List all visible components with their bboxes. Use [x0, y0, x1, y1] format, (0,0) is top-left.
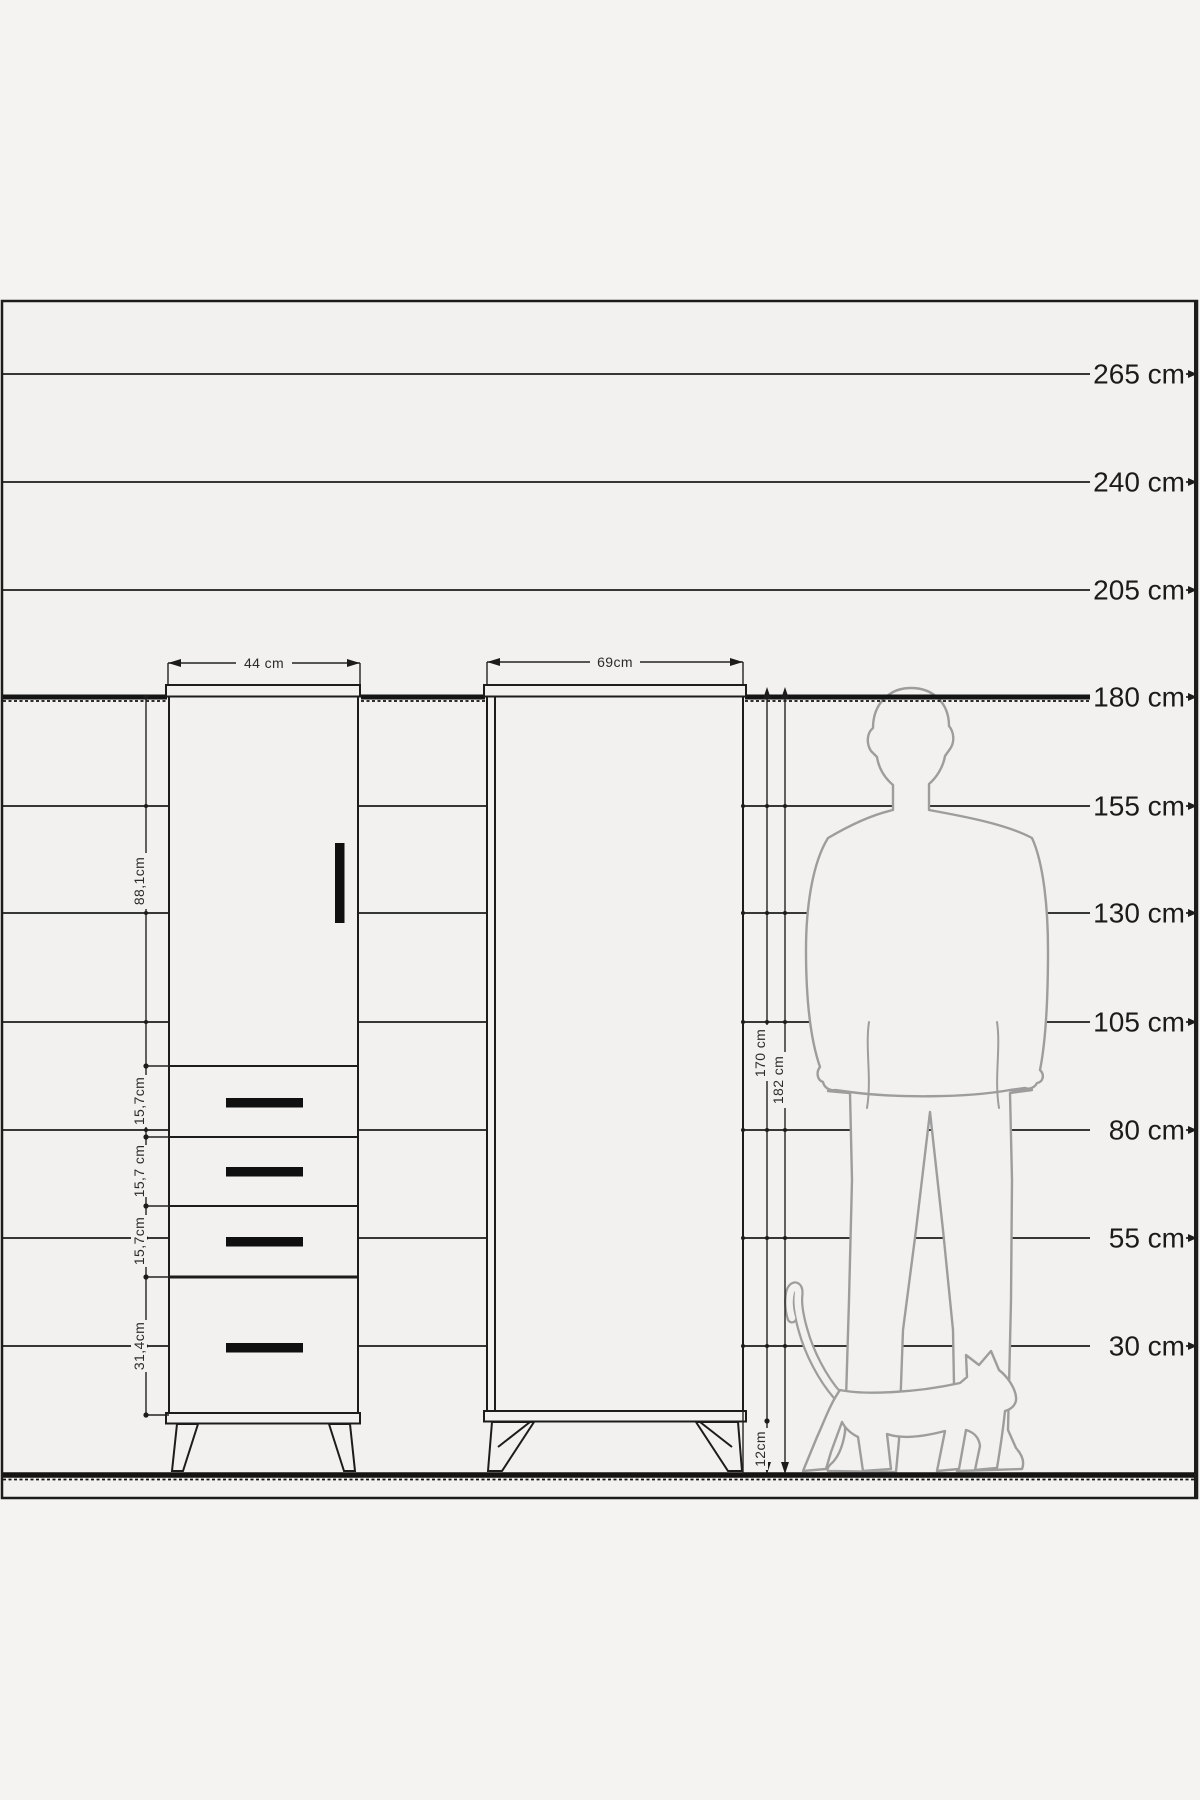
dim-node [764, 1418, 769, 1423]
scale-label: 155 cm [1093, 791, 1185, 822]
crossing-dot [144, 804, 148, 808]
width-dimension-label: 44 cm [244, 655, 284, 671]
small-cabinet [166, 685, 360, 1471]
scale-label: 30 cm [1109, 1331, 1185, 1362]
cabinet-bottom-panel [166, 1413, 360, 1424]
door-height-label: 88,1cm [131, 857, 147, 905]
crossing-dot [765, 1236, 769, 1240]
crossing-dot [765, 1344, 769, 1348]
dim-node [143, 1134, 148, 1139]
crossing-dot [783, 1344, 787, 1348]
scale-label: 55 cm [1109, 1223, 1185, 1254]
crossing-dot [783, 804, 787, 808]
dim-node [143, 694, 148, 699]
total-height-label: 182 cm [770, 1056, 786, 1104]
crossing-dot [783, 911, 787, 915]
cabinet-top-panel [166, 685, 360, 697]
crossing-dot [144, 1128, 148, 1132]
crossing-dot [783, 1236, 787, 1240]
scale-label: 180 cm [1093, 682, 1185, 713]
crossing-dot [741, 1128, 745, 1132]
drawer-height-label: 15,7cm [131, 1217, 147, 1265]
drawer-handle[interactable] [226, 1237, 303, 1247]
crossing-dot [765, 1020, 769, 1024]
dim-node [143, 1063, 148, 1068]
crossing-dot [741, 1344, 745, 1348]
drawer-handle[interactable] [226, 1167, 303, 1177]
crossing-dot [741, 911, 745, 915]
crossing-dot [765, 911, 769, 915]
drawer-height-label: 15,7cm [131, 1077, 147, 1125]
dim-node [143, 1412, 148, 1417]
scale-label: 80 cm [1109, 1115, 1185, 1146]
dim-node [143, 1274, 148, 1279]
crossing-dot [144, 1020, 148, 1024]
drawer-handle[interactable] [226, 1098, 303, 1108]
crossing-dot [741, 804, 745, 808]
crossing-dot [765, 1128, 769, 1132]
body-height-label: 170 cm [752, 1029, 768, 1077]
drawer-handle[interactable] [226, 1343, 303, 1353]
leg-height-label: 12cm [752, 1431, 768, 1467]
furniture-elevation-diagram: 265 cm 240 cm 205 cm 155 cm 130 [0, 0, 1200, 1800]
door-handle[interactable] [335, 843, 345, 923]
drawer-height-label: 15,7 cm [131, 1145, 147, 1198]
crossing-dot [741, 1236, 745, 1240]
cabinet-bottom-panel [484, 1411, 746, 1422]
cabinet-body [487, 696, 743, 1412]
cabinet-top-panel [484, 685, 746, 697]
floor-line [3, 1475, 1196, 1480]
crossing-dot [783, 1020, 787, 1024]
crossing-dot [741, 1020, 745, 1024]
cabinet-body [169, 696, 358, 1415]
large-cabinet [484, 685, 746, 1471]
crossing-dot [783, 1128, 787, 1132]
drawer-height-label: 31,4cm [131, 1322, 147, 1370]
dim-node [143, 1203, 148, 1208]
crossing-dot [765, 804, 769, 808]
scale-label: 130 cm [1093, 898, 1185, 929]
crossing-dot [144, 911, 148, 915]
scale-label: 265 cm [1093, 359, 1185, 390]
scale-label: 105 cm [1093, 1007, 1185, 1038]
scale-label: 205 cm [1093, 575, 1185, 606]
width-dimension-label: 69cm [597, 654, 633, 670]
scale-label: 240 cm [1093, 467, 1185, 498]
